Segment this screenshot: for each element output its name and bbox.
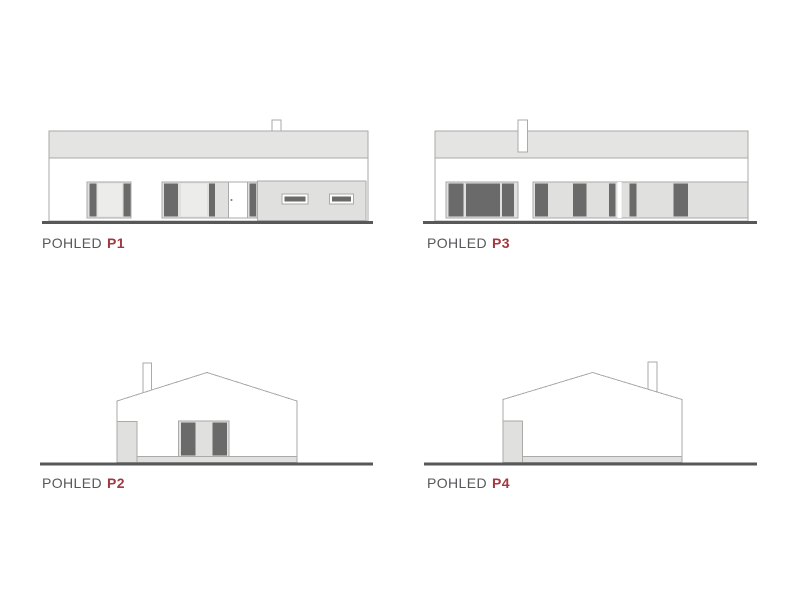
caption-p3: POHLEDP3	[427, 235, 510, 251]
caption-code: P3	[492, 235, 510, 251]
roof-band	[49, 131, 368, 158]
door-handle	[231, 199, 233, 201]
elevations-drawing	[0, 0, 800, 600]
annex-wall	[503, 421, 523, 463]
caption-label: POHLED	[42, 235, 102, 251]
entrance-group	[162, 182, 257, 218]
elevation-drawing-p2	[40, 363, 373, 464]
elevation-drawing-p4	[424, 362, 757, 464]
caption-label: POHLED	[427, 475, 487, 491]
plinth	[117, 457, 297, 463]
chimney	[272, 120, 281, 132]
chimney	[648, 362, 657, 392]
caption-code: P1	[107, 235, 125, 251]
caption-code: P2	[107, 475, 125, 491]
window-band-right	[533, 182, 748, 218]
elevation-drawing-p3	[423, 120, 757, 223]
caption-code: P4	[492, 475, 510, 491]
caption-label: POHLED	[427, 235, 487, 251]
caption-p1: POHLEDP1	[42, 235, 125, 251]
garage-band	[258, 181, 367, 221]
caption-p2: POHLEDP2	[42, 475, 125, 491]
double-door	[179, 421, 230, 457]
caption-label: POHLED	[42, 475, 102, 491]
chimney	[143, 363, 152, 393]
roof-band	[435, 131, 748, 158]
caption-p4: POHLEDP4	[427, 475, 510, 491]
plinth	[505, 457, 682, 463]
chimney	[518, 120, 528, 152]
elevation-drawing-p1	[42, 120, 373, 223]
window-group-left	[87, 182, 131, 218]
window-group-left	[446, 182, 518, 218]
annex-wall	[117, 422, 137, 463]
architectural-elevations-sheet: POHLEDP1 POHLEDP3 POHLEDP2 POHLEDP4	[0, 0, 800, 600]
